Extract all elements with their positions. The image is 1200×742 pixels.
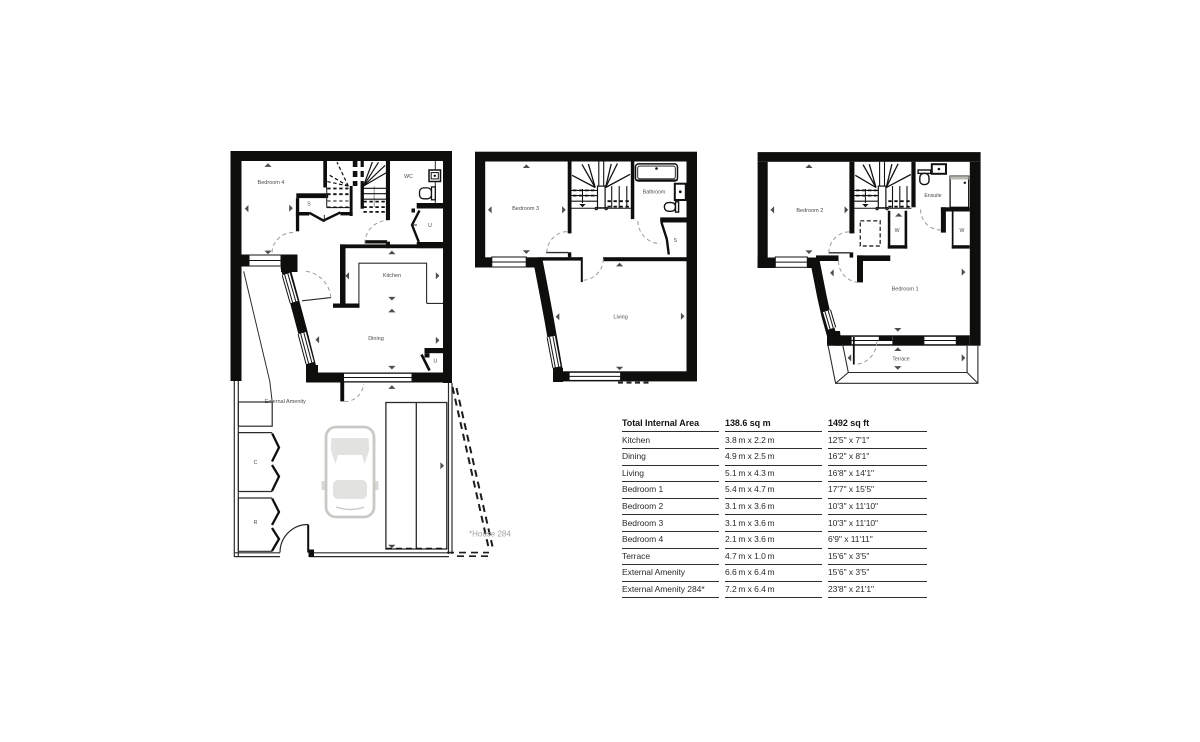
svg-text:Terrace: Terrace	[892, 357, 909, 363]
svg-text:S: S	[674, 238, 678, 244]
svg-text:Bedroom 4: Bedroom 4	[258, 180, 285, 186]
svg-text:Kitchen: Kitchen	[383, 273, 401, 279]
svg-text:Bedroom 3: Bedroom 3	[512, 206, 539, 212]
svg-text:Bedroom 2: Bedroom 2	[796, 208, 823, 214]
svg-text:U: U	[428, 223, 432, 229]
svg-text:WC: WC	[404, 174, 413, 180]
svg-text:Bathroom: Bathroom	[643, 190, 666, 196]
svg-text:U: U	[434, 359, 438, 365]
svg-text:S: S	[307, 202, 311, 208]
svg-text:W: W	[959, 228, 964, 234]
svg-text:W: W	[895, 228, 900, 234]
svg-text:Ensuite: Ensuite	[924, 193, 941, 199]
svg-text:Bedroom 1: Bedroom 1	[892, 287, 919, 293]
svg-text:C: C	[254, 460, 258, 466]
svg-text:Dining: Dining	[368, 336, 384, 342]
svg-text:Living: Living	[613, 315, 627, 321]
svg-text:R: R	[254, 520, 258, 526]
svg-text:External Amenity: External Amenity	[265, 399, 307, 405]
svg-text:*House 284: *House 284	[469, 530, 511, 539]
